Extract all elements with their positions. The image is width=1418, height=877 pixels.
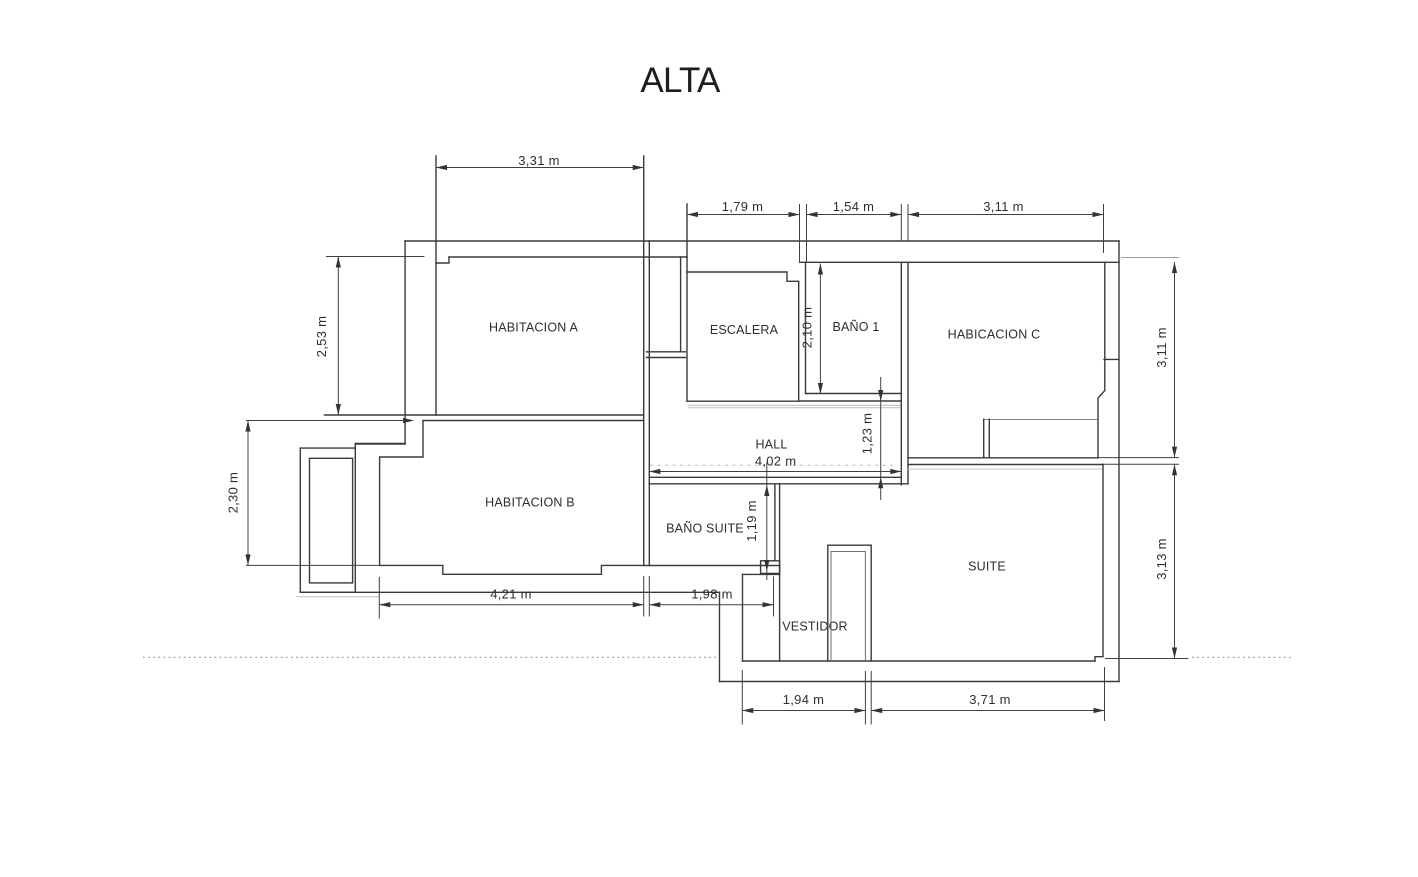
- svg-text:2,10 m: 2,10 m: [800, 307, 815, 349]
- svg-text:1,54 m: 1,54 m: [833, 199, 875, 214]
- svg-text:ALTA: ALTA: [640, 61, 721, 100]
- svg-text:1,98 m: 1,98 m: [691, 587, 733, 602]
- svg-text:2,30 m: 2,30 m: [226, 472, 241, 514]
- svg-text:BAÑO SUITE: BAÑO SUITE: [666, 522, 744, 536]
- svg-text:HABITACION B: HABITACION B: [485, 496, 575, 510]
- svg-text:1,94 m: 1,94 m: [783, 692, 825, 707]
- svg-text:HABICACION C: HABICACION C: [948, 328, 1041, 342]
- svg-text:ESCALERA: ESCALERA: [710, 323, 779, 337]
- svg-text:1,23 m: 1,23 m: [860, 413, 875, 455]
- svg-text:VESTIDOR: VESTIDOR: [782, 620, 848, 634]
- svg-text:3,11 m: 3,11 m: [983, 199, 1024, 214]
- svg-text:3,31 m: 3,31 m: [518, 153, 560, 168]
- svg-text:3,11 m: 3,11 m: [1154, 327, 1169, 368]
- svg-text:1,79 m: 1,79 m: [722, 199, 764, 214]
- svg-text:3,13 m: 3,13 m: [1154, 538, 1169, 580]
- svg-text:1,19 m: 1,19 m: [744, 500, 759, 542]
- svg-text:HABITACION A: HABITACION A: [489, 321, 578, 335]
- svg-text:HALL: HALL: [755, 438, 787, 452]
- svg-text:2,53 m: 2,53 m: [314, 316, 329, 358]
- svg-text:3,71 m: 3,71 m: [969, 692, 1011, 707]
- svg-text:4,02 m: 4,02 m: [755, 454, 797, 469]
- svg-text:BAÑO 1: BAÑO 1: [832, 320, 879, 334]
- svg-text:4,21 m: 4,21 m: [490, 587, 532, 602]
- svg-text:SUITE: SUITE: [968, 560, 1006, 574]
